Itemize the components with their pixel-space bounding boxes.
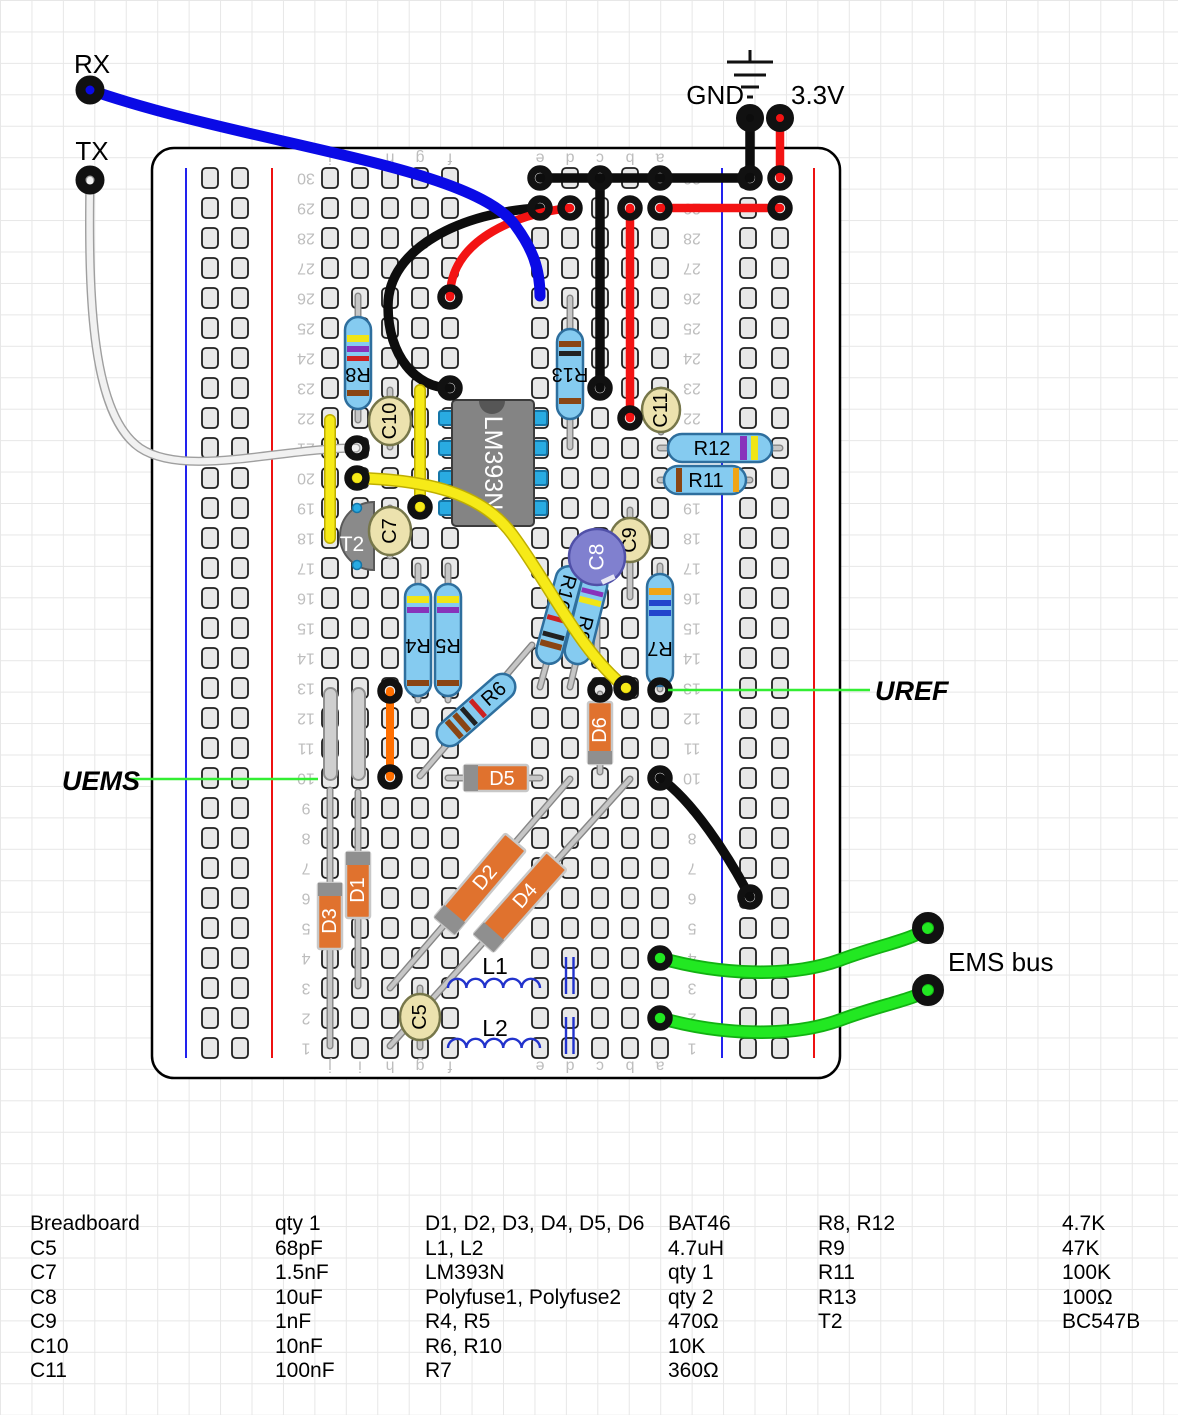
breadboard-hole xyxy=(202,1008,218,1028)
breadboard-hole xyxy=(740,318,756,338)
column-letter: d xyxy=(566,150,575,167)
row-number: 19 xyxy=(683,500,701,517)
breadboard-hole xyxy=(352,1038,368,1058)
row-number: 1 xyxy=(301,1040,310,1057)
breadboard-hole xyxy=(382,888,398,908)
breadboard-hole xyxy=(772,828,788,848)
capacitor-c10: C10 xyxy=(369,397,411,445)
capacitor-c5: C5 xyxy=(400,994,440,1040)
row-number: 13 xyxy=(683,680,701,697)
breadboard-hole xyxy=(202,528,218,548)
parts-list-value: BC547B xyxy=(1062,1310,1140,1334)
breadboard-hole xyxy=(772,738,788,758)
row-number: 6 xyxy=(301,890,310,907)
column-letter: a xyxy=(655,150,664,167)
breadboard-hole xyxy=(232,318,248,338)
parts-list-item: R11 xyxy=(818,1261,855,1285)
breadboard-hole xyxy=(740,288,756,308)
breadboard-hole xyxy=(532,318,548,338)
breadboard-hole xyxy=(532,378,548,398)
breadboard-hole xyxy=(622,918,638,938)
row-number: 4 xyxy=(301,950,310,967)
breadboard-hole xyxy=(232,498,248,518)
resistor-r11: R11 xyxy=(664,466,746,494)
row-number: 8 xyxy=(687,830,696,847)
breadboard-hole xyxy=(772,648,788,668)
breadboard-hole xyxy=(202,498,218,518)
breadboard-hole xyxy=(652,708,668,728)
breadboard-hole xyxy=(622,948,638,968)
row-number: 30 xyxy=(297,170,315,187)
breadboard-hole xyxy=(232,948,248,968)
svg-text:D1: D1 xyxy=(347,877,369,903)
row-number: 17 xyxy=(683,560,701,577)
breadboard-hole xyxy=(352,228,368,248)
breadboard-hole xyxy=(652,1038,668,1058)
breadboard-hole xyxy=(622,1038,638,1058)
row-number: 26 xyxy=(683,290,701,307)
breadboard-hole xyxy=(622,798,638,818)
breadboard-hole xyxy=(592,828,608,848)
breadboard-hole xyxy=(412,258,428,278)
tx-label: TX xyxy=(75,136,108,166)
breadboard-hole xyxy=(622,738,638,758)
breadboard-hole xyxy=(772,498,788,518)
breadboard-hole xyxy=(412,708,428,728)
breadboard-hole xyxy=(532,1008,548,1028)
breadboard-hole xyxy=(232,1008,248,1028)
svg-text:R13: R13 xyxy=(552,363,589,385)
row-number: 26 xyxy=(297,290,315,307)
breadboard-hole xyxy=(562,1038,578,1058)
breadboard-hole xyxy=(740,588,756,608)
row-number: 5 xyxy=(301,920,310,937)
breadboard-hole xyxy=(232,618,248,638)
breadboard-hole xyxy=(740,1038,756,1058)
breadboard-hole xyxy=(532,948,548,968)
column-letter: e xyxy=(535,1058,544,1075)
breadboard-hole xyxy=(202,738,218,758)
breadboard-hole xyxy=(232,528,248,548)
column-letter: d xyxy=(566,1058,575,1075)
uems-label: UEMS xyxy=(62,766,140,796)
breadboard-hole xyxy=(532,828,548,848)
l2-label: L2 xyxy=(482,1015,508,1041)
breadboard-hole xyxy=(592,468,608,488)
breadboard-hole xyxy=(232,288,248,308)
breadboard-hole xyxy=(322,168,338,188)
breadboard-hole xyxy=(352,198,368,218)
diode-d1: D1 xyxy=(346,852,370,918)
breadboard-hole xyxy=(412,828,428,848)
breadboard-hole xyxy=(622,978,638,998)
svg-text:R8: R8 xyxy=(345,363,371,385)
polyfuse1 xyxy=(324,688,337,780)
column-letter: j xyxy=(328,1058,333,1075)
breadboard-hole xyxy=(592,978,608,998)
parts-list-item: C7 xyxy=(30,1261,57,1285)
parts-list-value: 1.5nF xyxy=(275,1261,329,1285)
breadboard-hole xyxy=(352,258,368,278)
row-number: 7 xyxy=(301,860,310,877)
column-letter: c xyxy=(596,150,604,167)
breadboard-hole xyxy=(232,408,248,428)
t2-label: T2 xyxy=(340,533,365,556)
breadboard-hole xyxy=(740,348,756,368)
row-number: 8 xyxy=(301,830,310,847)
breadboard-hole xyxy=(382,858,398,878)
breadboard-hole xyxy=(532,528,548,548)
breadboard-hole xyxy=(202,288,218,308)
breadboard-hole xyxy=(772,978,788,998)
row-number: 11 xyxy=(298,740,315,757)
fritzing-breadboard-diagram: 1122334455667788991010111112121313141415… xyxy=(0,0,1178,1415)
breadboard-hole xyxy=(652,738,668,758)
breadboard-hole xyxy=(322,618,338,638)
breadboard-hole xyxy=(740,978,756,998)
breadboard-hole xyxy=(352,618,368,638)
parts-list-item: C5 xyxy=(30,1237,57,1261)
breadboard-hole xyxy=(412,918,428,938)
parts-list-value: BAT46 xyxy=(668,1212,731,1236)
breadboard-hole xyxy=(232,648,248,668)
breadboard-hole xyxy=(202,168,218,188)
parts-list-item: R6, R10 xyxy=(425,1335,502,1359)
breadboard-hole xyxy=(622,438,638,458)
breadboard-hole xyxy=(322,348,338,368)
breadboard-hole xyxy=(652,858,668,878)
uref-label: UREF xyxy=(875,676,950,706)
breadboard-hole xyxy=(442,828,458,848)
row-number: 1 xyxy=(687,1040,696,1057)
row-number: 16 xyxy=(297,590,315,607)
breadboard-hole xyxy=(562,918,578,938)
breadboard-hole xyxy=(740,498,756,518)
resistor-r8: R8 xyxy=(345,317,371,409)
breadboard-hole xyxy=(352,588,368,608)
breadboard-hole xyxy=(382,948,398,968)
row-number: 16 xyxy=(683,590,701,607)
breadboard-hole xyxy=(322,318,338,338)
breadboard-hole xyxy=(740,828,756,848)
breadboard-hole xyxy=(592,408,608,428)
breadboard-hole xyxy=(772,528,788,548)
breadboard-hole xyxy=(232,738,248,758)
capacitor-c8: C8 xyxy=(569,529,625,585)
breadboard-hole xyxy=(232,558,248,578)
breadboard-hole xyxy=(772,768,788,788)
diode-d6: D6 xyxy=(588,702,612,764)
resistor-r7: R7 xyxy=(647,574,673,686)
breadboard-hole xyxy=(232,1038,248,1058)
breadboard-hole xyxy=(652,978,668,998)
breadboard-hole xyxy=(442,798,458,818)
breadboard-hole xyxy=(202,228,218,248)
breadboard-hole xyxy=(232,588,248,608)
breadboard-hole xyxy=(772,798,788,818)
parts-list-value: qty 1 xyxy=(668,1261,714,1285)
breadboard-hole xyxy=(382,798,398,818)
breadboard-hole xyxy=(202,468,218,488)
breadboard-hole xyxy=(592,1008,608,1028)
breadboard-hole xyxy=(562,978,578,998)
breadboard-hole xyxy=(412,528,428,548)
breadboard-hole xyxy=(592,858,608,878)
breadboard-hole xyxy=(412,348,428,368)
breadboard-hole xyxy=(592,948,608,968)
t2-pin-dot xyxy=(353,504,362,513)
breadboard-hole xyxy=(202,828,218,848)
breadboard-hole xyxy=(562,258,578,278)
row-number: 15 xyxy=(297,620,315,637)
breadboard-hole xyxy=(652,288,668,308)
breadboard-hole xyxy=(232,978,248,998)
column-letter: h xyxy=(386,1058,395,1075)
breadboard-hole xyxy=(772,258,788,278)
breadboard-hole xyxy=(772,558,788,578)
svg-text:C5: C5 xyxy=(409,1004,431,1030)
svg-text:R5: R5 xyxy=(435,634,461,656)
breadboard-hole xyxy=(202,258,218,278)
parts-list-item: R8, R12 xyxy=(818,1212,895,1236)
circuit-diagram: 1122334455667788991010111112121313141415… xyxy=(0,0,1178,1415)
row-number: 25 xyxy=(297,320,315,337)
breadboard-hole xyxy=(562,498,578,518)
ic-label: LM393N xyxy=(479,416,507,511)
row-number: 29 xyxy=(297,200,315,217)
breadboard-hole xyxy=(382,648,398,668)
column-letter: c xyxy=(596,1058,604,1075)
diode-d3: D3 xyxy=(318,883,342,949)
parts-list-item: D1, D2, D3, D4, D5, D6 xyxy=(425,1212,644,1236)
parts-list-item: R4, R5 xyxy=(425,1310,490,1334)
parts-list-value: 100K xyxy=(1062,1261,1111,1285)
breadboard-hole xyxy=(622,858,638,878)
row-number: 13 xyxy=(297,680,315,697)
svg-text:R12: R12 xyxy=(694,438,731,460)
breadboard-hole xyxy=(772,228,788,248)
breadboard-hole xyxy=(740,408,756,428)
breadboard-hole xyxy=(562,468,578,488)
breadboard-hole xyxy=(442,528,458,548)
resistor-r13: R13 xyxy=(552,329,589,419)
breadboard-hole xyxy=(202,798,218,818)
svg-text:D5: D5 xyxy=(489,768,515,790)
breadboard-hole xyxy=(232,798,248,818)
resistor-r4: R4 xyxy=(405,584,431,696)
gnd-label: GND xyxy=(686,80,744,110)
row-number: 3 xyxy=(301,980,310,997)
breadboard-hole xyxy=(232,888,248,908)
breadboard-hole xyxy=(622,648,638,668)
breadboard-hole xyxy=(652,828,668,848)
breadboard-hole xyxy=(562,888,578,908)
parts-list-item: C8 xyxy=(30,1286,57,1310)
row-number: 27 xyxy=(297,260,315,277)
breadboard-hole xyxy=(382,588,398,608)
breadboard-hole xyxy=(202,588,218,608)
svg-text:D6: D6 xyxy=(589,717,611,743)
breadboard-hole xyxy=(652,228,668,248)
breadboard-hole xyxy=(202,918,218,938)
breadboard-hole xyxy=(740,738,756,758)
breadboard-hole xyxy=(740,678,756,698)
row-number: 19 xyxy=(297,500,315,517)
row-number: 18 xyxy=(297,530,315,547)
resistor-r12: R12 xyxy=(668,434,772,462)
breadboard-hole xyxy=(772,708,788,728)
breadboard-hole xyxy=(562,708,578,728)
breadboard-hole xyxy=(202,618,218,638)
breadboard-hole xyxy=(772,378,788,398)
row-number: 2 xyxy=(301,1010,310,1027)
row-number: 10 xyxy=(683,770,701,787)
breadboard-hole xyxy=(232,918,248,938)
parts-list-item: R7 xyxy=(425,1359,452,1383)
c8-label: C8 xyxy=(586,544,609,571)
breadboard-hole xyxy=(772,858,788,878)
breadboard-hole xyxy=(322,648,338,668)
breadboard-hole xyxy=(442,318,458,338)
breadboard-hole xyxy=(412,888,428,908)
row-number: 24 xyxy=(683,350,701,367)
breadboard-hole xyxy=(772,408,788,428)
breadboard-hole xyxy=(322,558,338,578)
breadboard-hole xyxy=(592,1038,608,1058)
column-letter: e xyxy=(535,150,544,167)
breadboard-hole xyxy=(442,348,458,368)
breadboard-hole xyxy=(772,318,788,338)
row-number: 12 xyxy=(683,710,701,727)
breadboard-hole xyxy=(740,798,756,818)
breadboard-hole xyxy=(562,228,578,248)
breadboard-hole xyxy=(652,888,668,908)
breadboard-hole xyxy=(532,228,548,248)
breadboard-hole xyxy=(412,198,428,218)
parts-list-value: 10uF xyxy=(275,1286,323,1310)
breadboard-hole xyxy=(322,288,338,308)
parts-list-value: 4.7uH xyxy=(668,1237,724,1261)
row-number: 5 xyxy=(687,920,696,937)
parts-list-value: 360Ω xyxy=(668,1359,719,1383)
breadboard-hole xyxy=(562,948,578,968)
parts-list-item: T2 xyxy=(818,1310,843,1334)
column-letter: f xyxy=(447,1058,452,1075)
row-number: 3 xyxy=(687,980,696,997)
breadboard-hole xyxy=(592,918,608,938)
row-number: 11 xyxy=(684,740,701,757)
breadboard-hole xyxy=(772,618,788,638)
breadboard-hole xyxy=(322,198,338,218)
svg-text:R11: R11 xyxy=(688,470,723,492)
parts-list-item: R13 xyxy=(818,1286,857,1310)
breadboard-hole xyxy=(202,708,218,728)
breadboard-hole xyxy=(532,348,548,368)
breadboard-hole xyxy=(652,918,668,938)
t2-pin-dot xyxy=(353,561,362,570)
ems-bus-label: EMS bus xyxy=(948,947,1054,977)
breadboard-hole xyxy=(772,1038,788,1058)
breadboard-hole xyxy=(740,768,756,788)
breadboard-hole xyxy=(232,228,248,248)
breadboard-hole xyxy=(532,738,548,758)
svg-text:D3: D3 xyxy=(319,908,341,934)
breadboard-hole xyxy=(772,468,788,488)
breadboard-hole xyxy=(442,198,458,218)
breadboard-hole xyxy=(232,258,248,278)
parts-list-value: 10nF xyxy=(275,1335,323,1359)
breadboard-hole xyxy=(412,288,428,308)
svg-text:C7: C7 xyxy=(379,518,401,544)
row-number: 15 xyxy=(683,620,701,637)
breadboard-hole xyxy=(772,588,788,608)
row-number: 22 xyxy=(683,410,701,427)
parts-list-item: C9 xyxy=(30,1310,57,1334)
breadboard-hole xyxy=(202,648,218,668)
parts-list-value: 1nF xyxy=(275,1310,311,1334)
capacitor-c7: C7 xyxy=(369,507,411,555)
breadboard-hole xyxy=(202,678,218,698)
breadboard-hole xyxy=(772,678,788,698)
breadboard-hole xyxy=(772,918,788,938)
breadboard-hole xyxy=(202,888,218,908)
breadboard-hole xyxy=(322,228,338,248)
breadboard-hole xyxy=(412,798,428,818)
parts-list-item: Polyfuse1, Polyfuse2 xyxy=(425,1286,621,1310)
column-letter: a xyxy=(655,1058,664,1075)
row-number: 6 xyxy=(687,890,696,907)
breadboard-hole xyxy=(592,498,608,518)
breadboard-hole xyxy=(772,288,788,308)
breadboard-hole xyxy=(202,408,218,428)
v33-label: 3.3V xyxy=(791,80,845,110)
breadboard-hole xyxy=(442,948,458,968)
breadboard-hole xyxy=(622,708,638,728)
breadboard-hole xyxy=(740,258,756,278)
diode-d5: D5 xyxy=(464,765,528,791)
breadboard-hole xyxy=(352,648,368,668)
breadboard-hole xyxy=(382,1008,398,1028)
breadboard-hole xyxy=(652,318,668,338)
row-number: 14 xyxy=(683,650,701,667)
row-number: 17 xyxy=(297,560,315,577)
breadboard-hole xyxy=(740,378,756,398)
breadboard-hole xyxy=(652,498,668,518)
resistor-r5: R5 xyxy=(435,584,461,696)
breadboard-hole xyxy=(592,438,608,458)
breadboard-hole xyxy=(740,528,756,548)
breadboard-hole xyxy=(232,378,248,398)
row-number: 25 xyxy=(683,320,701,337)
breadboard-hole xyxy=(352,1008,368,1028)
breadboard-hole xyxy=(322,588,338,608)
parts-list-value: 100Ω xyxy=(1062,1286,1113,1310)
parts-list-item: LM393N xyxy=(425,1261,504,1285)
row-number: 27 xyxy=(683,260,701,277)
parts-list-item: L1, L2 xyxy=(425,1237,483,1261)
parts-list-value: qty 1 xyxy=(275,1212,321,1236)
breadboard-hole xyxy=(232,348,248,368)
row-number: 20 xyxy=(297,470,315,487)
row-number: 22 xyxy=(297,410,315,427)
breadboard-hole xyxy=(652,798,668,818)
parts-list-item: Breadboard xyxy=(30,1212,140,1236)
breadboard-hole xyxy=(232,858,248,878)
breadboard-hole xyxy=(622,618,638,638)
breadboard-hole xyxy=(232,198,248,218)
parts-list-value: 10K xyxy=(668,1335,705,1359)
breadboard-hole xyxy=(232,678,248,698)
